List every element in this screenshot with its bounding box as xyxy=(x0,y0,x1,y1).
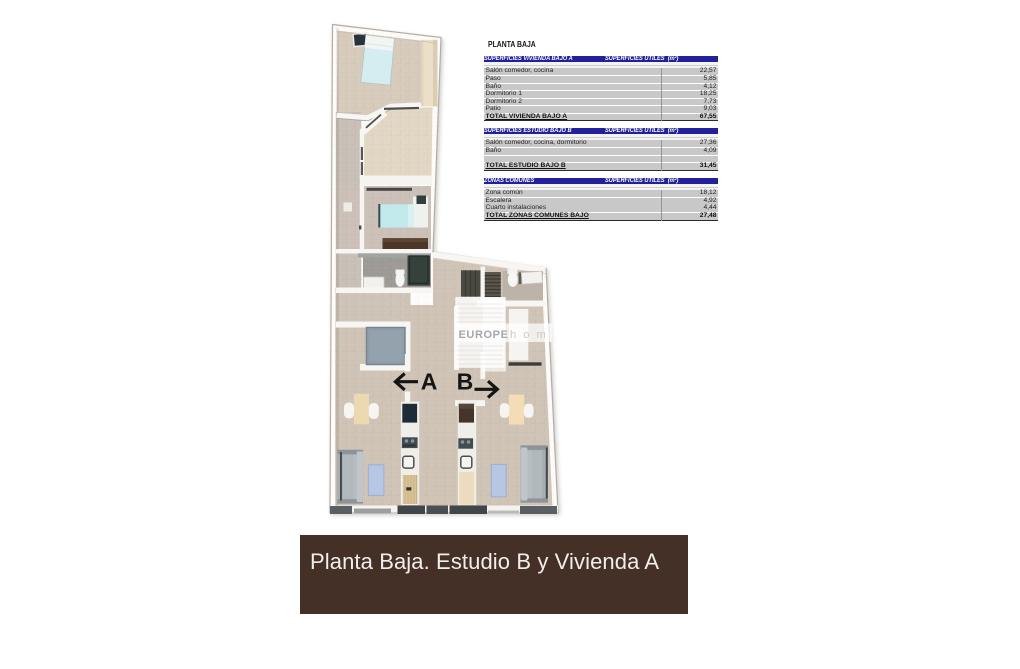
svg-text:hom: hom xyxy=(510,329,553,341)
svg-text:B: B xyxy=(457,369,474,395)
svg-text:A: A xyxy=(421,369,438,395)
svg-text:EUROPE: EUROPE xyxy=(459,329,509,341)
